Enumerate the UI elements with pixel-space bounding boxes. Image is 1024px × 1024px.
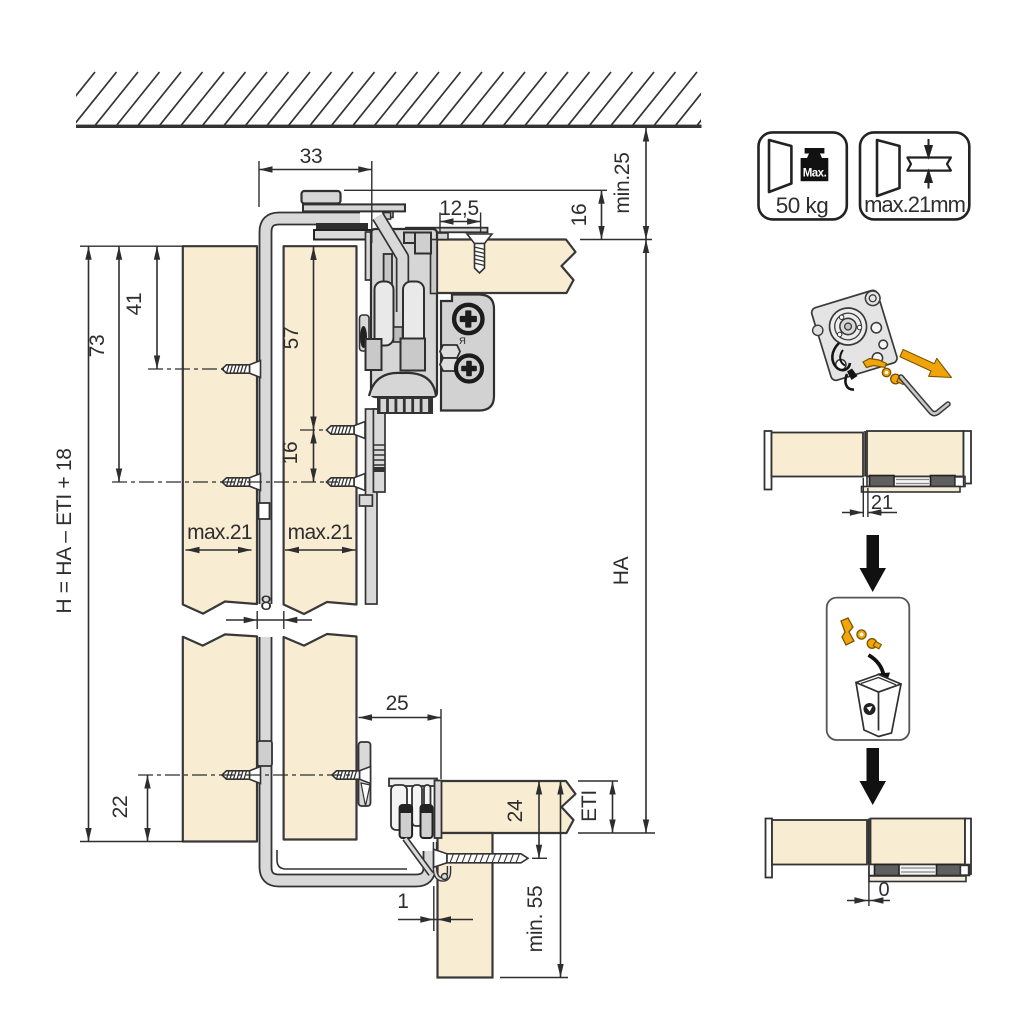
svg-text:max.21mm: max.21mm xyxy=(864,192,965,217)
svg-text:25: 25 xyxy=(386,692,409,715)
svg-text:12,5: 12,5 xyxy=(439,197,479,220)
svg-text:57: 57 xyxy=(280,327,303,350)
svg-text:max.21: max.21 xyxy=(187,521,252,544)
svg-text:41: 41 xyxy=(123,293,146,316)
svg-text:HA: HA xyxy=(610,556,633,585)
svg-text:Я: Я xyxy=(459,336,466,347)
svg-text:50 kg: 50 kg xyxy=(776,193,829,218)
svg-text:1: 1 xyxy=(397,890,408,913)
svg-text:Max.: Max. xyxy=(803,168,827,180)
svg-text:22: 22 xyxy=(109,796,132,819)
svg-text:73: 73 xyxy=(86,335,109,358)
svg-text:33: 33 xyxy=(300,145,323,168)
svg-text:min.25: min.25 xyxy=(611,152,634,213)
svg-text:21: 21 xyxy=(871,492,893,514)
svg-text:H = HA – ETI + 18: H = HA – ETI + 18 xyxy=(53,448,76,613)
svg-text:16: 16 xyxy=(568,204,591,227)
svg-text:max.21: max.21 xyxy=(288,521,353,544)
svg-text:8: 8 xyxy=(260,592,271,615)
svg-text:ETI: ETI xyxy=(578,790,601,822)
svg-text:16: 16 xyxy=(279,442,302,465)
svg-text:0: 0 xyxy=(878,879,889,901)
svg-text:min. 55: min. 55 xyxy=(524,886,547,953)
svg-text:24: 24 xyxy=(504,799,527,822)
